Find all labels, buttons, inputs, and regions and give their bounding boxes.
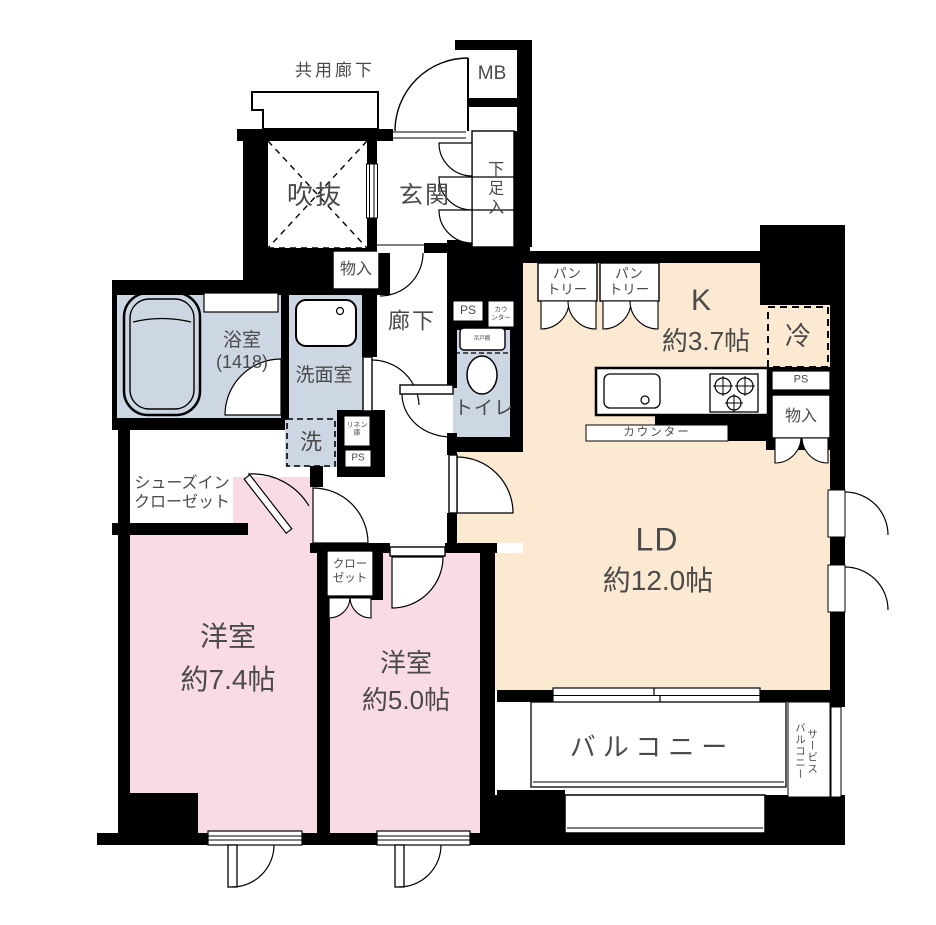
- counter-label: カウンター: [623, 426, 691, 439]
- bedroom2-size-label: 約5.0帖: [362, 686, 450, 716]
- washroom-door: [363, 357, 419, 411]
- shoe-cabinet-label: 下足入: [484, 161, 502, 218]
- hallway-label: 廊下: [388, 308, 436, 333]
- ld-size-label: 約12.0帖: [603, 565, 714, 597]
- entrance-label: 玄関: [399, 182, 451, 210]
- ps-kitchen-label: PS: [794, 374, 809, 387]
- washer-label: 洗: [300, 429, 322, 454]
- service-balcony-line1: サービス: [806, 722, 818, 780]
- ps-sanitary-label: PS: [351, 452, 364, 464]
- bedroom1-window: [208, 831, 302, 845]
- kitchen-size-label: 約3.7帖: [662, 327, 750, 357]
- ld-balcony-window: [553, 688, 760, 703]
- pantry1-line2: トリー: [547, 282, 588, 298]
- bathroom-label-line2: (1418): [216, 353, 268, 374]
- hall-storage-label: 物入: [340, 261, 372, 279]
- bathroom-label-line1: 浴室: [216, 330, 268, 352]
- toilet-counter-line2: ンター: [491, 314, 511, 322]
- service-balcony-line2: バルコニー: [794, 722, 806, 780]
- pantry1-label: パン トリー: [547, 266, 588, 298]
- toilet-door: [400, 385, 453, 437]
- balcony-railing: [565, 795, 765, 833]
- bath-counter: [204, 293, 278, 312]
- bedroom1-size-label: 約7.4帖: [181, 664, 276, 696]
- bedroom1-label: 洋室: [200, 621, 256, 653]
- pantry2-line1: パン: [609, 266, 650, 282]
- floorplan-drawing: [0, 0, 936, 925]
- pantry2-label: パン トリー: [609, 266, 650, 298]
- void-window: [367, 164, 378, 218]
- shoes-closet-line2: クローゼット: [134, 494, 230, 513]
- shoes-closet-label: シューズイン クローゼット: [134, 475, 230, 513]
- void-label: 吹抜: [287, 181, 343, 211]
- toilet-counter-line1: カウ: [491, 306, 511, 314]
- exterior-features: [252, 50, 517, 129]
- kitchen-storage-label: 物入: [785, 408, 817, 426]
- service-balcony-rail: [831, 707, 841, 797]
- toilet-shelf-label: 吊戸棚: [474, 336, 491, 342]
- toilet-counter-label: カウ ンター: [491, 306, 511, 321]
- bedroom2-window: [377, 831, 470, 845]
- bedroom2-exterior-door: [395, 845, 441, 887]
- ld-label: LD: [636, 522, 679, 559]
- ld-west-lower-floor: [495, 553, 523, 690]
- closet-line1: クロー: [333, 558, 368, 572]
- bedroom1-door: [313, 488, 368, 543]
- stove-icon: [710, 374, 758, 412]
- kitchen-sink-icon: [604, 374, 660, 408]
- bathroom-label: 浴室 (1418): [216, 330, 268, 374]
- ps-toilet-label: PS: [460, 304, 476, 318]
- kitchen-label: K: [691, 284, 711, 319]
- porch-outline: [252, 92, 378, 129]
- service-balcony-label: サービス バルコニー: [794, 722, 818, 780]
- toilet-label: トイレ: [454, 398, 514, 420]
- bedroom1-exterior-door: [228, 845, 274, 887]
- balcony-label: バルコニー: [570, 733, 734, 763]
- linen-label: リネン 庫: [347, 422, 368, 439]
- shoes-closet-line1: シューズイン: [134, 475, 230, 494]
- washroom-label: 洗面室: [295, 365, 352, 387]
- linen-label-line1: リネン: [347, 422, 368, 430]
- bedroom2-label: 洋室: [380, 649, 432, 679]
- fridge-label: 冷: [785, 322, 811, 352]
- floorplan: 共用廊下 MB 吹抜 玄関 下足入 物入 廊下 浴室 (1418) 洗面室 洗 …: [0, 0, 936, 925]
- washroom-sink-icon: [296, 300, 356, 346]
- entrance-door: [393, 58, 468, 141]
- pantry1-line1: パン: [547, 266, 588, 282]
- closet-line2: ゼット: [333, 572, 368, 586]
- pantry2-line2: トリー: [609, 282, 650, 298]
- meter-box-label: MB: [478, 63, 507, 85]
- closet-label: クロー ゼット: [333, 558, 368, 585]
- shared-corridor-label: 共用廊下: [295, 61, 375, 81]
- linen-label-line2: 庫: [347, 430, 368, 438]
